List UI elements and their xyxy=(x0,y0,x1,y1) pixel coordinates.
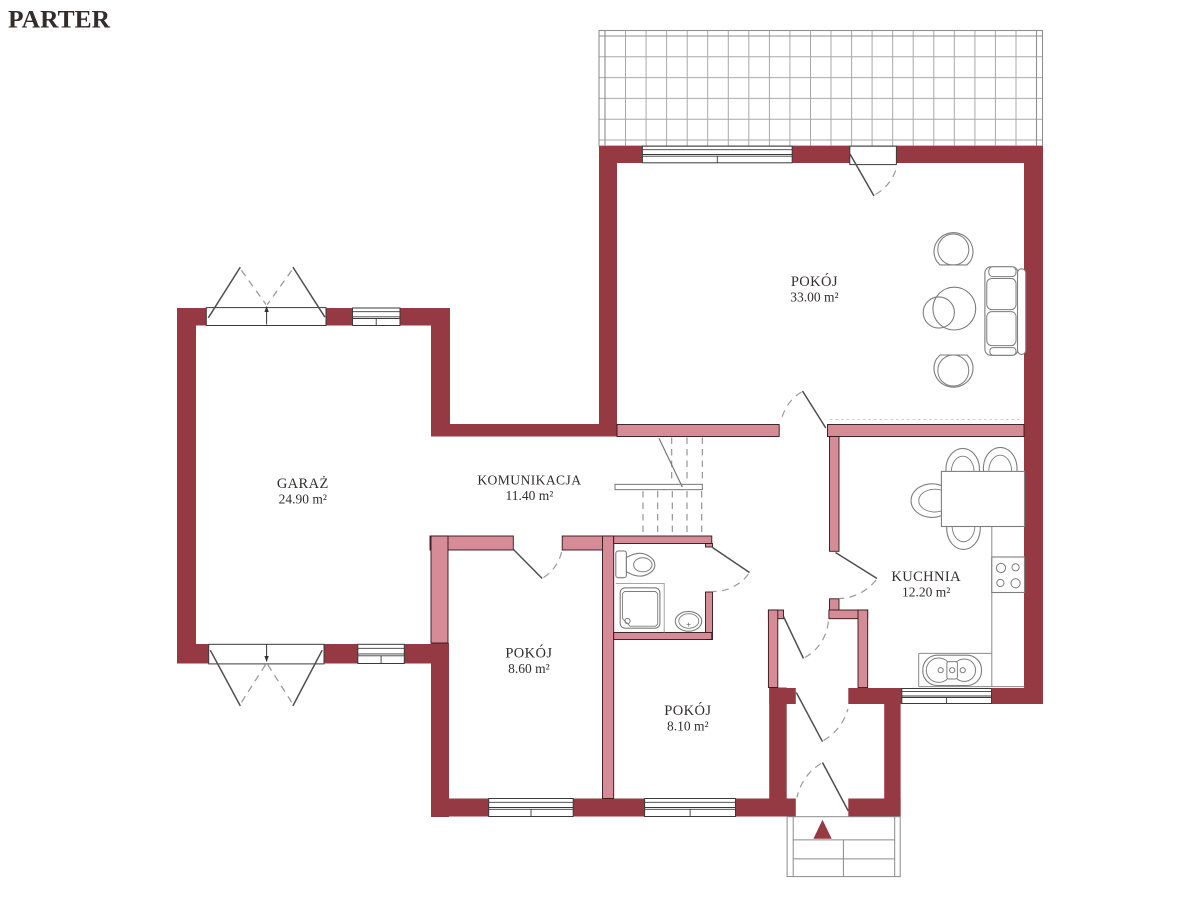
svg-text:33.00 m²: 33.00 m² xyxy=(790,289,838,304)
svg-text:PARTER: PARTER xyxy=(8,5,111,34)
svg-text:24.90 m²: 24.90 m² xyxy=(279,491,327,506)
svg-text:POKÓJ: POKÓJ xyxy=(791,273,838,290)
svg-text:KOMUNIKACJA: KOMUNIKACJA xyxy=(477,472,581,487)
svg-text:12.20 m²: 12.20 m² xyxy=(902,585,950,600)
svg-text:11.40 m²: 11.40 m² xyxy=(505,488,553,503)
svg-text:KUCHNIA: KUCHNIA xyxy=(891,569,961,585)
svg-text:8.10 m²: 8.10 m² xyxy=(667,719,709,734)
svg-text:GARAŻ: GARAŻ xyxy=(277,476,329,492)
svg-text:POKÓJ: POKÓJ xyxy=(505,645,552,662)
svg-text:POKÓJ: POKÓJ xyxy=(664,702,711,719)
svg-text:8.60 m²: 8.60 m² xyxy=(508,661,550,676)
